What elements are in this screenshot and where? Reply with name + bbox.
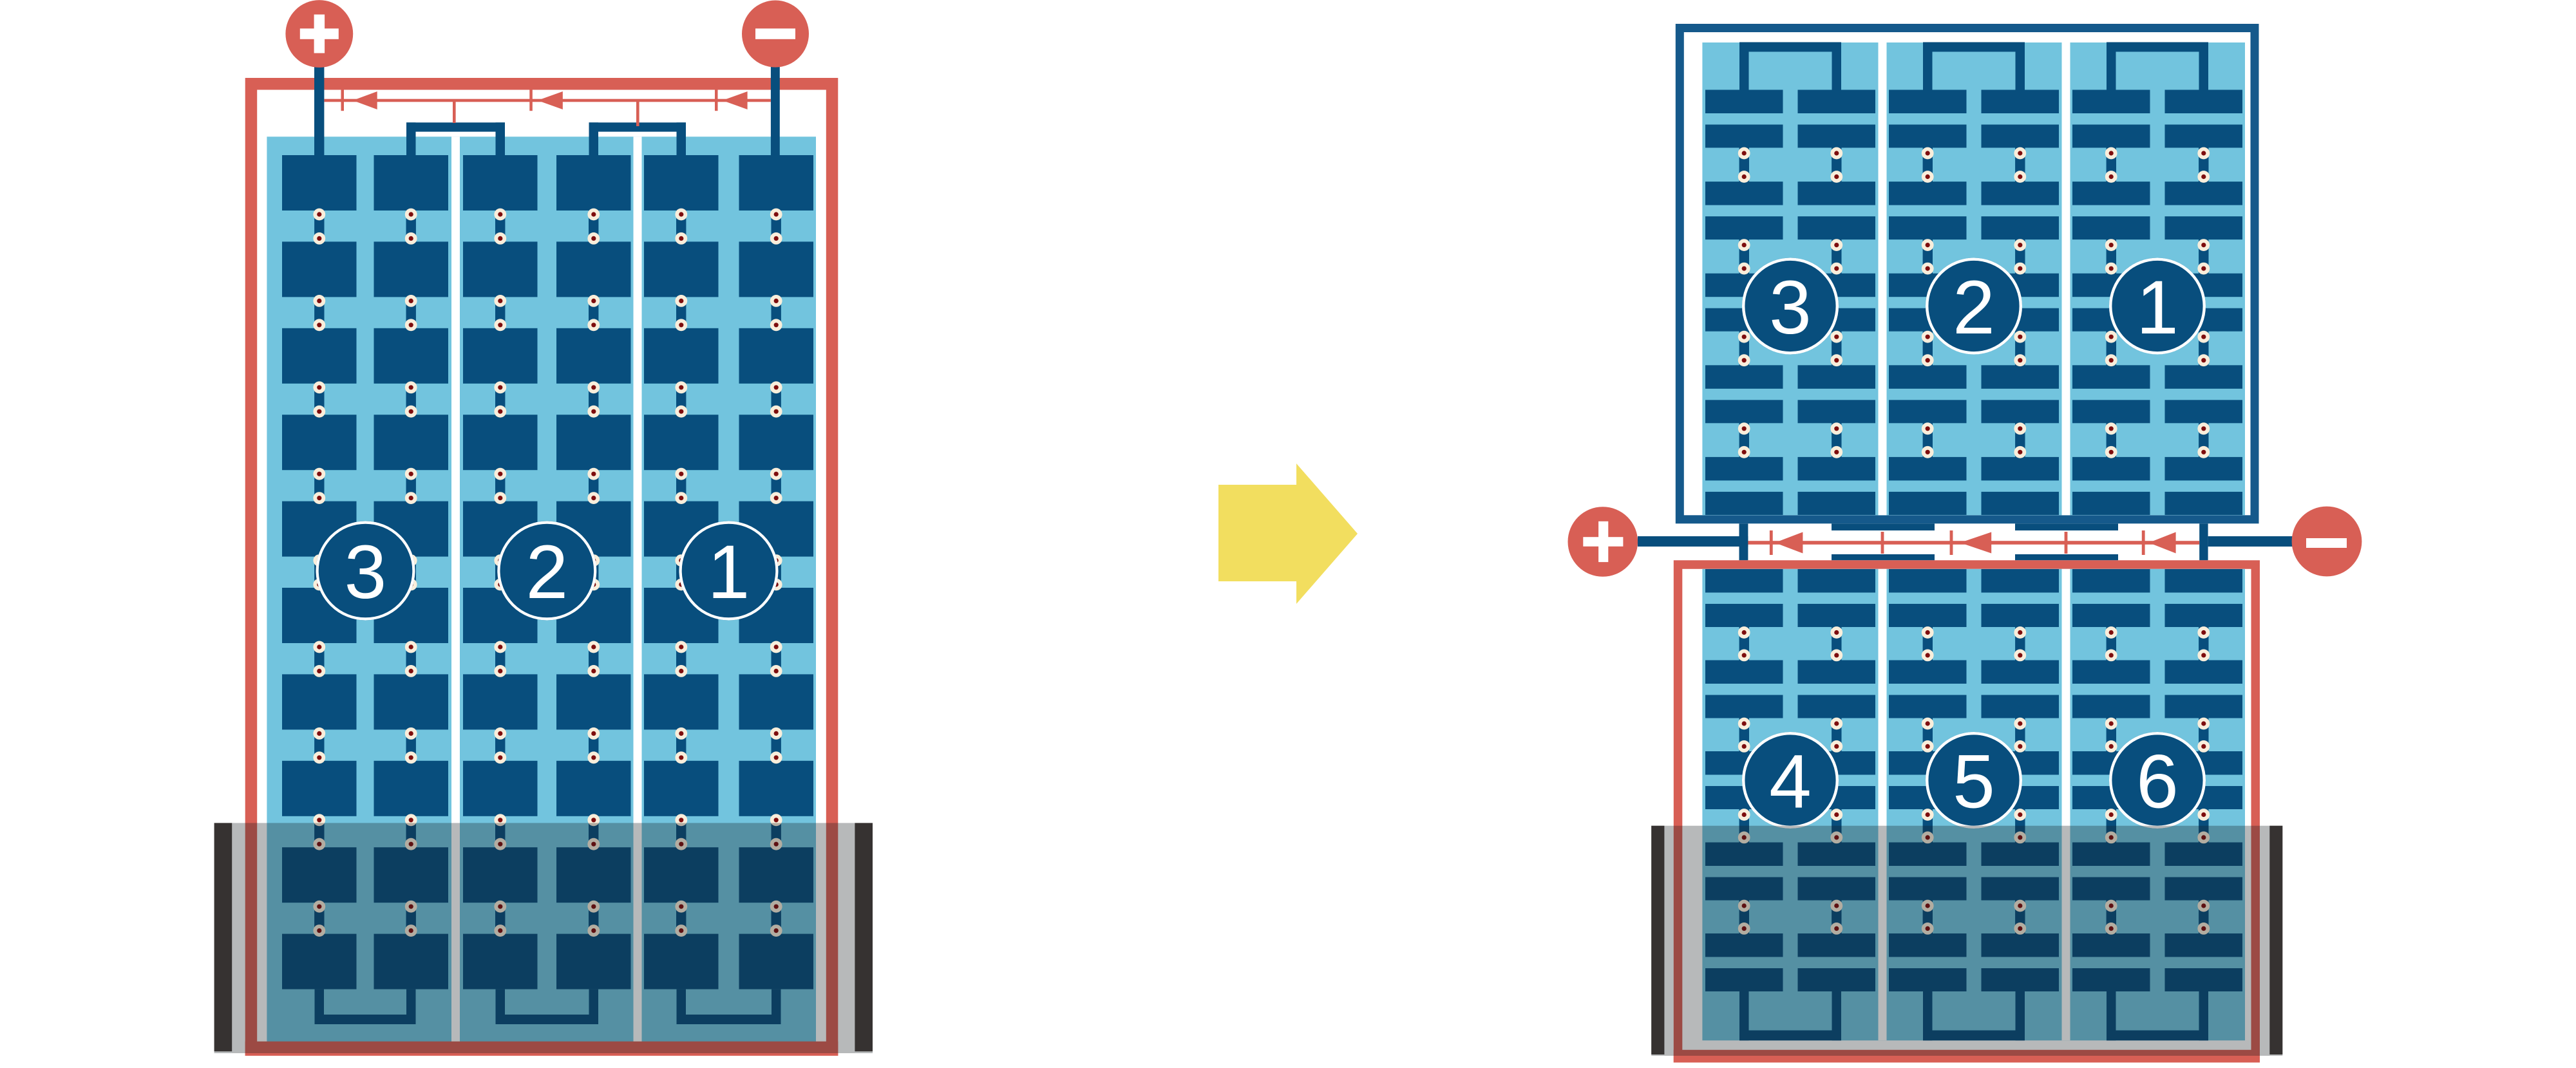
svg-text:1: 1 (708, 530, 750, 615)
svg-text:6: 6 (2136, 740, 2179, 825)
svg-text:1: 1 (2136, 265, 2179, 350)
svg-text:3: 3 (345, 530, 387, 615)
svg-text:5: 5 (1953, 740, 1995, 825)
svg-text:4: 4 (1769, 740, 1812, 825)
svg-text:2: 2 (526, 530, 568, 615)
svg-text:3: 3 (1769, 265, 1812, 350)
svg-text:2: 2 (1953, 265, 1995, 350)
